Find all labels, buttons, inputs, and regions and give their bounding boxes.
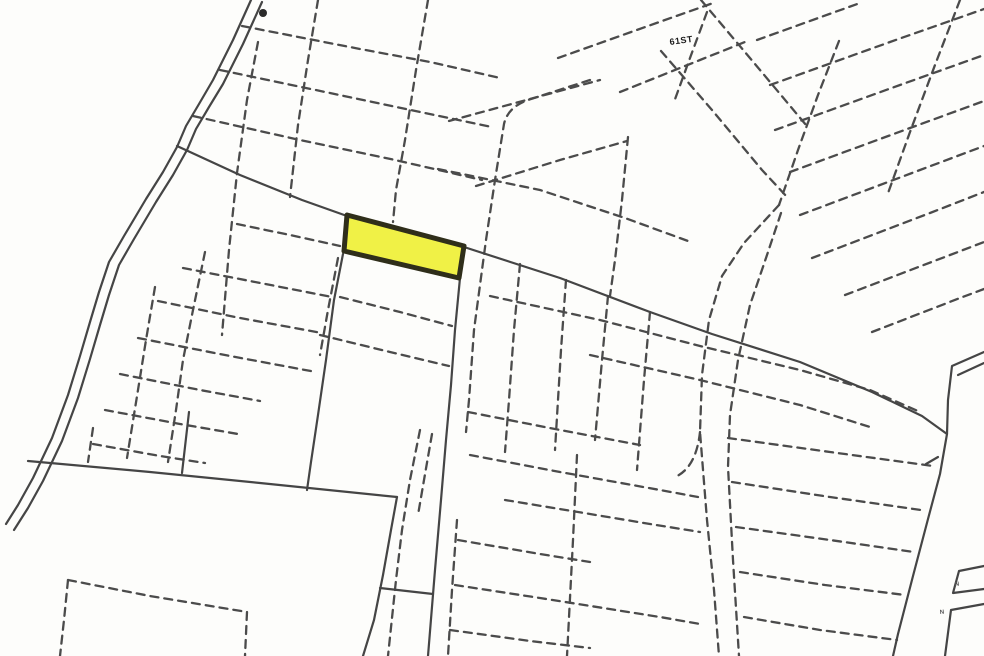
edge-label-upper: N	[955, 582, 960, 588]
map-marker-dot	[259, 9, 267, 17]
edge-label-lower: N	[940, 610, 945, 616]
plat-map[interactable]: 61STNN	[0, 0, 984, 656]
plat-map-svg[interactable]: 61STNN	[0, 0, 984, 656]
